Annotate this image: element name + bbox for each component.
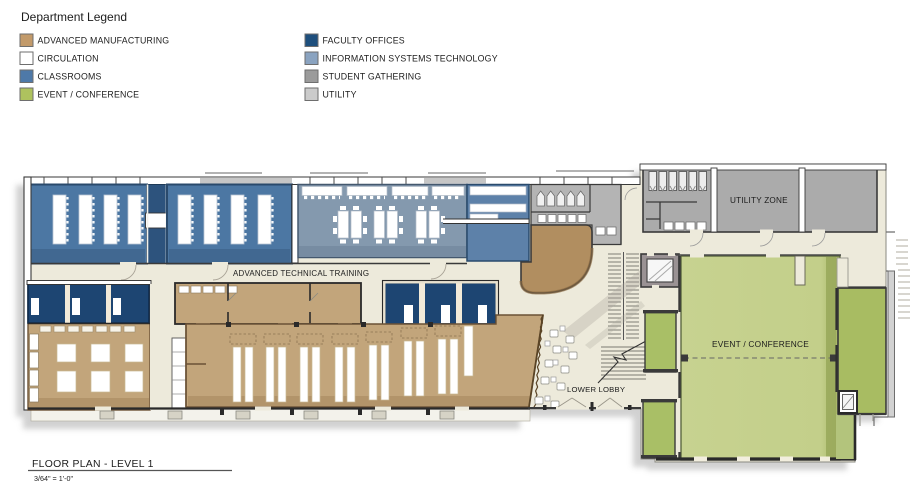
svg-text:EVENT / CONFERENCE: EVENT / CONFERENCE: [38, 90, 140, 100]
svg-text:CLASSROOMS: CLASSROOMS: [38, 72, 102, 82]
svg-text:CIRCULATION: CIRCULATION: [38, 54, 99, 64]
svg-text:STUDENT GATHERING: STUDENT GATHERING: [323, 72, 422, 82]
svg-text:ADVANCED TECHNICAL TRAINING: ADVANCED TECHNICAL TRAINING: [233, 269, 369, 278]
svg-text:UTILITY: UTILITY: [323, 90, 357, 100]
svg-text:UTILITY ZONE: UTILITY ZONE: [730, 196, 788, 205]
svg-text:INFORMATION SYSTEMS TECHNOLOGY: INFORMATION SYSTEMS TECHNOLOGY: [323, 54, 498, 64]
svg-text:FACULTY OFFICES: FACULTY OFFICES: [323, 36, 405, 46]
svg-text:LOWER LOBBY: LOWER LOBBY: [567, 385, 625, 394]
svg-text:3/64" = 1'-0": 3/64" = 1'-0": [34, 474, 73, 483]
svg-text:ADVANCED MANUFACTURING: ADVANCED MANUFACTURING: [38, 36, 170, 46]
svg-text:Department Legend: Department Legend: [21, 10, 127, 24]
svg-text:FLOOR PLAN - LEVEL 1: FLOOR PLAN - LEVEL 1: [32, 459, 154, 470]
svg-text:EVENT / CONFERENCE: EVENT / CONFERENCE: [712, 339, 809, 349]
